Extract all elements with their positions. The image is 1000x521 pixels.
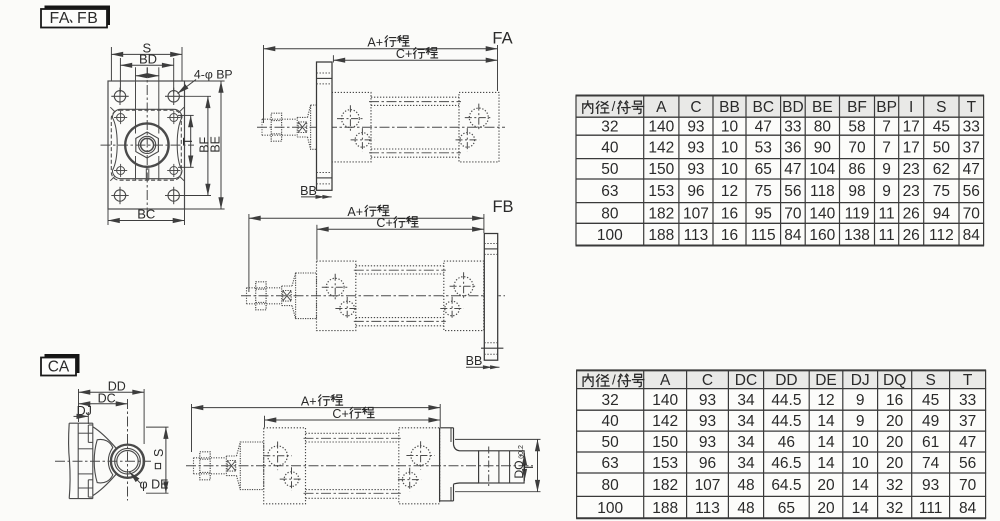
- svg-text:93: 93: [699, 434, 716, 451]
- svg-text:70: 70: [784, 205, 802, 222]
- svg-text:58: 58: [848, 119, 865, 136]
- svg-text:48: 48: [737, 477, 754, 494]
- svg-text:150: 150: [648, 161, 674, 178]
- svg-text:40: 40: [602, 413, 620, 430]
- svg-text:14: 14: [817, 413, 835, 430]
- svg-text:BB: BB: [466, 354, 483, 368]
- svg-text:188: 188: [652, 500, 678, 517]
- svg-text:T: T: [522, 463, 536, 471]
- svg-text:138: 138: [844, 227, 870, 244]
- svg-text:93: 93: [687, 119, 704, 136]
- svg-text:86: 86: [848, 161, 865, 178]
- svg-text:36: 36: [784, 139, 801, 156]
- svg-text:90: 90: [814, 139, 832, 156]
- svg-text:70: 70: [963, 205, 981, 222]
- svg-text:16: 16: [886, 392, 903, 409]
- svg-text:9: 9: [856, 392, 865, 409]
- svg-text:153: 153: [648, 183, 674, 200]
- svg-text:32: 32: [602, 392, 619, 409]
- svg-text:17: 17: [903, 139, 920, 156]
- svg-text:4-φ BP: 4-φ BP: [194, 67, 233, 81]
- svg-text:16: 16: [721, 205, 738, 222]
- svg-text:56: 56: [784, 183, 801, 200]
- svg-text:FB: FB: [77, 10, 98, 27]
- svg-text:62: 62: [933, 161, 950, 178]
- svg-text:75: 75: [755, 183, 772, 200]
- svg-text:63: 63: [601, 183, 618, 200]
- svg-text:C+: C+: [332, 407, 348, 421]
- svg-text:140: 140: [652, 392, 678, 409]
- svg-text:182: 182: [648, 205, 674, 222]
- svg-text:65: 65: [778, 500, 795, 517]
- svg-text:112: 112: [929, 227, 954, 244]
- svg-text:50: 50: [933, 139, 951, 156]
- svg-text:37: 37: [963, 139, 980, 156]
- svg-text:BC: BC: [753, 99, 775, 116]
- svg-text:32: 32: [886, 500, 903, 517]
- svg-text:S: S: [936, 99, 946, 116]
- svg-text:93: 93: [699, 392, 716, 409]
- svg-text:111: 111: [919, 500, 943, 517]
- svg-text:94: 94: [933, 205, 951, 222]
- svg-text:BF: BF: [847, 99, 867, 116]
- svg-text:12: 12: [817, 392, 834, 409]
- svg-text:BD: BD: [139, 52, 157, 67]
- svg-text:56: 56: [959, 455, 976, 472]
- svg-text:10: 10: [721, 119, 739, 136]
- svg-text:DE: DE: [815, 372, 837, 389]
- svg-text:C: C: [690, 99, 701, 116]
- svg-text:48: 48: [737, 500, 754, 517]
- svg-text:20: 20: [886, 434, 904, 451]
- svg-text:75: 75: [933, 183, 950, 200]
- svg-text:20: 20: [817, 500, 835, 517]
- svg-text:95: 95: [755, 205, 772, 222]
- svg-text:140: 140: [809, 205, 835, 222]
- svg-text:32: 32: [601, 119, 618, 136]
- svg-text:C+: C+: [376, 216, 392, 230]
- svg-text:FA: FA: [492, 30, 512, 48]
- svg-text:11: 11: [879, 227, 895, 244]
- svg-text:A+: A+: [301, 394, 317, 408]
- svg-text:FA: FA: [50, 10, 71, 27]
- svg-text:150: 150: [652, 434, 678, 451]
- svg-text:BB: BB: [719, 99, 740, 116]
- svg-text:T: T: [967, 99, 977, 116]
- svg-text:7: 7: [882, 139, 891, 156]
- svg-text:34: 34: [737, 392, 755, 409]
- svg-text:33: 33: [784, 119, 801, 136]
- svg-text:140: 140: [648, 119, 674, 136]
- svg-text:47: 47: [959, 434, 976, 451]
- svg-text:100: 100: [597, 227, 623, 244]
- svg-text:93: 93: [687, 161, 704, 178]
- svg-text:63: 63: [602, 455, 619, 472]
- svg-text:56: 56: [963, 183, 980, 200]
- svg-text:65: 65: [755, 161, 772, 178]
- svg-text:115: 115: [751, 227, 776, 244]
- svg-text:45: 45: [933, 119, 950, 136]
- svg-text:70: 70: [848, 139, 866, 156]
- svg-text:53: 53: [755, 139, 772, 156]
- svg-text:T: T: [963, 372, 973, 389]
- svg-text:93: 93: [699, 413, 716, 430]
- svg-text:113: 113: [695, 500, 720, 517]
- svg-text:DD: DD: [775, 372, 797, 389]
- svg-text:119: 119: [845, 205, 870, 222]
- svg-text:I: I: [909, 99, 913, 116]
- svg-text:142: 142: [648, 139, 674, 156]
- svg-text:BP: BP: [876, 99, 897, 116]
- svg-text:34: 34: [737, 413, 755, 430]
- svg-text:T: T: [181, 137, 195, 145]
- svg-text:26: 26: [903, 205, 920, 222]
- svg-text:DC: DC: [98, 391, 116, 405]
- svg-text:47: 47: [963, 161, 980, 178]
- svg-text:61: 61: [922, 434, 939, 451]
- svg-text:/: /: [612, 99, 616, 114]
- svg-text:32: 32: [886, 477, 903, 494]
- svg-text:17: 17: [903, 119, 920, 136]
- svg-text:9: 9: [882, 183, 891, 200]
- svg-text:CA: CA: [48, 359, 70, 376]
- svg-text:23: 23: [903, 161, 920, 178]
- svg-text:142: 142: [652, 413, 678, 430]
- svg-text:C: C: [702, 372, 713, 389]
- svg-text:34: 34: [737, 455, 755, 472]
- svg-text:37: 37: [959, 413, 976, 430]
- svg-text:40: 40: [601, 139, 619, 156]
- svg-text:11: 11: [879, 205, 895, 222]
- svg-text:47: 47: [784, 161, 801, 178]
- svg-text:34: 34: [737, 434, 755, 451]
- svg-text:98: 98: [848, 183, 865, 200]
- svg-text:46: 46: [778, 434, 795, 451]
- svg-text:33: 33: [963, 119, 980, 136]
- svg-text:113: 113: [684, 227, 709, 244]
- svg-text:C+: C+: [396, 47, 412, 61]
- svg-text:/: /: [612, 372, 616, 387]
- svg-text:14: 14: [817, 455, 835, 472]
- svg-text:20: 20: [886, 455, 904, 472]
- svg-text:80: 80: [601, 205, 619, 222]
- svg-text:50: 50: [602, 434, 620, 451]
- svg-text:84: 84: [963, 227, 981, 244]
- svg-text:107: 107: [683, 205, 709, 222]
- svg-text:S: S: [925, 372, 935, 389]
- svg-text:93: 93: [687, 139, 704, 156]
- svg-text:104: 104: [809, 161, 835, 178]
- svg-text:10: 10: [852, 434, 870, 451]
- svg-text:182: 182: [652, 477, 678, 494]
- svg-text:A: A: [660, 372, 671, 389]
- svg-text:BB: BB: [300, 184, 317, 198]
- svg-text:44.5: 44.5: [771, 413, 801, 430]
- svg-text:10: 10: [721, 161, 739, 178]
- svg-text:23: 23: [903, 183, 920, 200]
- svg-text:A+: A+: [367, 35, 383, 49]
- svg-text:16: 16: [721, 227, 738, 244]
- svg-text:100: 100: [597, 500, 623, 517]
- svg-text:A: A: [656, 99, 667, 116]
- svg-text:93: 93: [922, 477, 939, 494]
- svg-text:DJ: DJ: [851, 372, 870, 389]
- svg-text:DQ: DQ: [883, 372, 906, 389]
- svg-text:74: 74: [922, 455, 940, 472]
- svg-text:10: 10: [852, 455, 870, 472]
- svg-text:7: 7: [882, 119, 891, 136]
- svg-text:80: 80: [814, 119, 832, 136]
- svg-text:14: 14: [817, 434, 835, 451]
- svg-text:BE: BE: [812, 99, 833, 116]
- svg-text:70: 70: [959, 477, 977, 494]
- svg-text:107: 107: [695, 477, 721, 494]
- svg-text:φ DE: φ DE: [140, 477, 169, 491]
- svg-text:12: 12: [721, 183, 738, 200]
- svg-text:9: 9: [882, 161, 891, 178]
- svg-text:A+: A+: [347, 205, 363, 219]
- svg-text:FB: FB: [492, 198, 513, 216]
- svg-text:44.5: 44.5: [771, 392, 801, 409]
- svg-text:DC: DC: [735, 372, 757, 389]
- svg-text:26: 26: [903, 227, 920, 244]
- svg-text:84: 84: [959, 500, 977, 517]
- svg-text:BC: BC: [137, 206, 155, 221]
- svg-text:64.5: 64.5: [771, 477, 801, 494]
- svg-text:84: 84: [784, 227, 802, 244]
- svg-text:BD: BD: [782, 99, 804, 116]
- svg-text:47: 47: [755, 119, 772, 136]
- svg-text:49: 49: [922, 413, 939, 430]
- svg-text:118: 118: [810, 183, 835, 200]
- svg-text:80: 80: [602, 477, 620, 494]
- svg-text:20: 20: [886, 413, 904, 430]
- svg-text:14: 14: [852, 500, 870, 517]
- svg-text:33: 33: [959, 392, 976, 409]
- svg-text:-0.2: -0.2: [516, 445, 525, 457]
- svg-text:46.5: 46.5: [771, 455, 801, 472]
- svg-text:S: S: [152, 449, 166, 457]
- svg-text:10: 10: [721, 139, 739, 156]
- svg-text:160: 160: [809, 227, 835, 244]
- svg-text:50: 50: [601, 161, 619, 178]
- svg-text:BE: BE: [209, 136, 223, 153]
- svg-text:14: 14: [852, 477, 870, 494]
- svg-text:9: 9: [856, 413, 865, 430]
- svg-text:153: 153: [652, 455, 678, 472]
- svg-text:96: 96: [699, 455, 716, 472]
- svg-text:20: 20: [817, 477, 835, 494]
- svg-text:45: 45: [922, 392, 939, 409]
- svg-text:96: 96: [687, 183, 704, 200]
- svg-text:188: 188: [648, 227, 674, 244]
